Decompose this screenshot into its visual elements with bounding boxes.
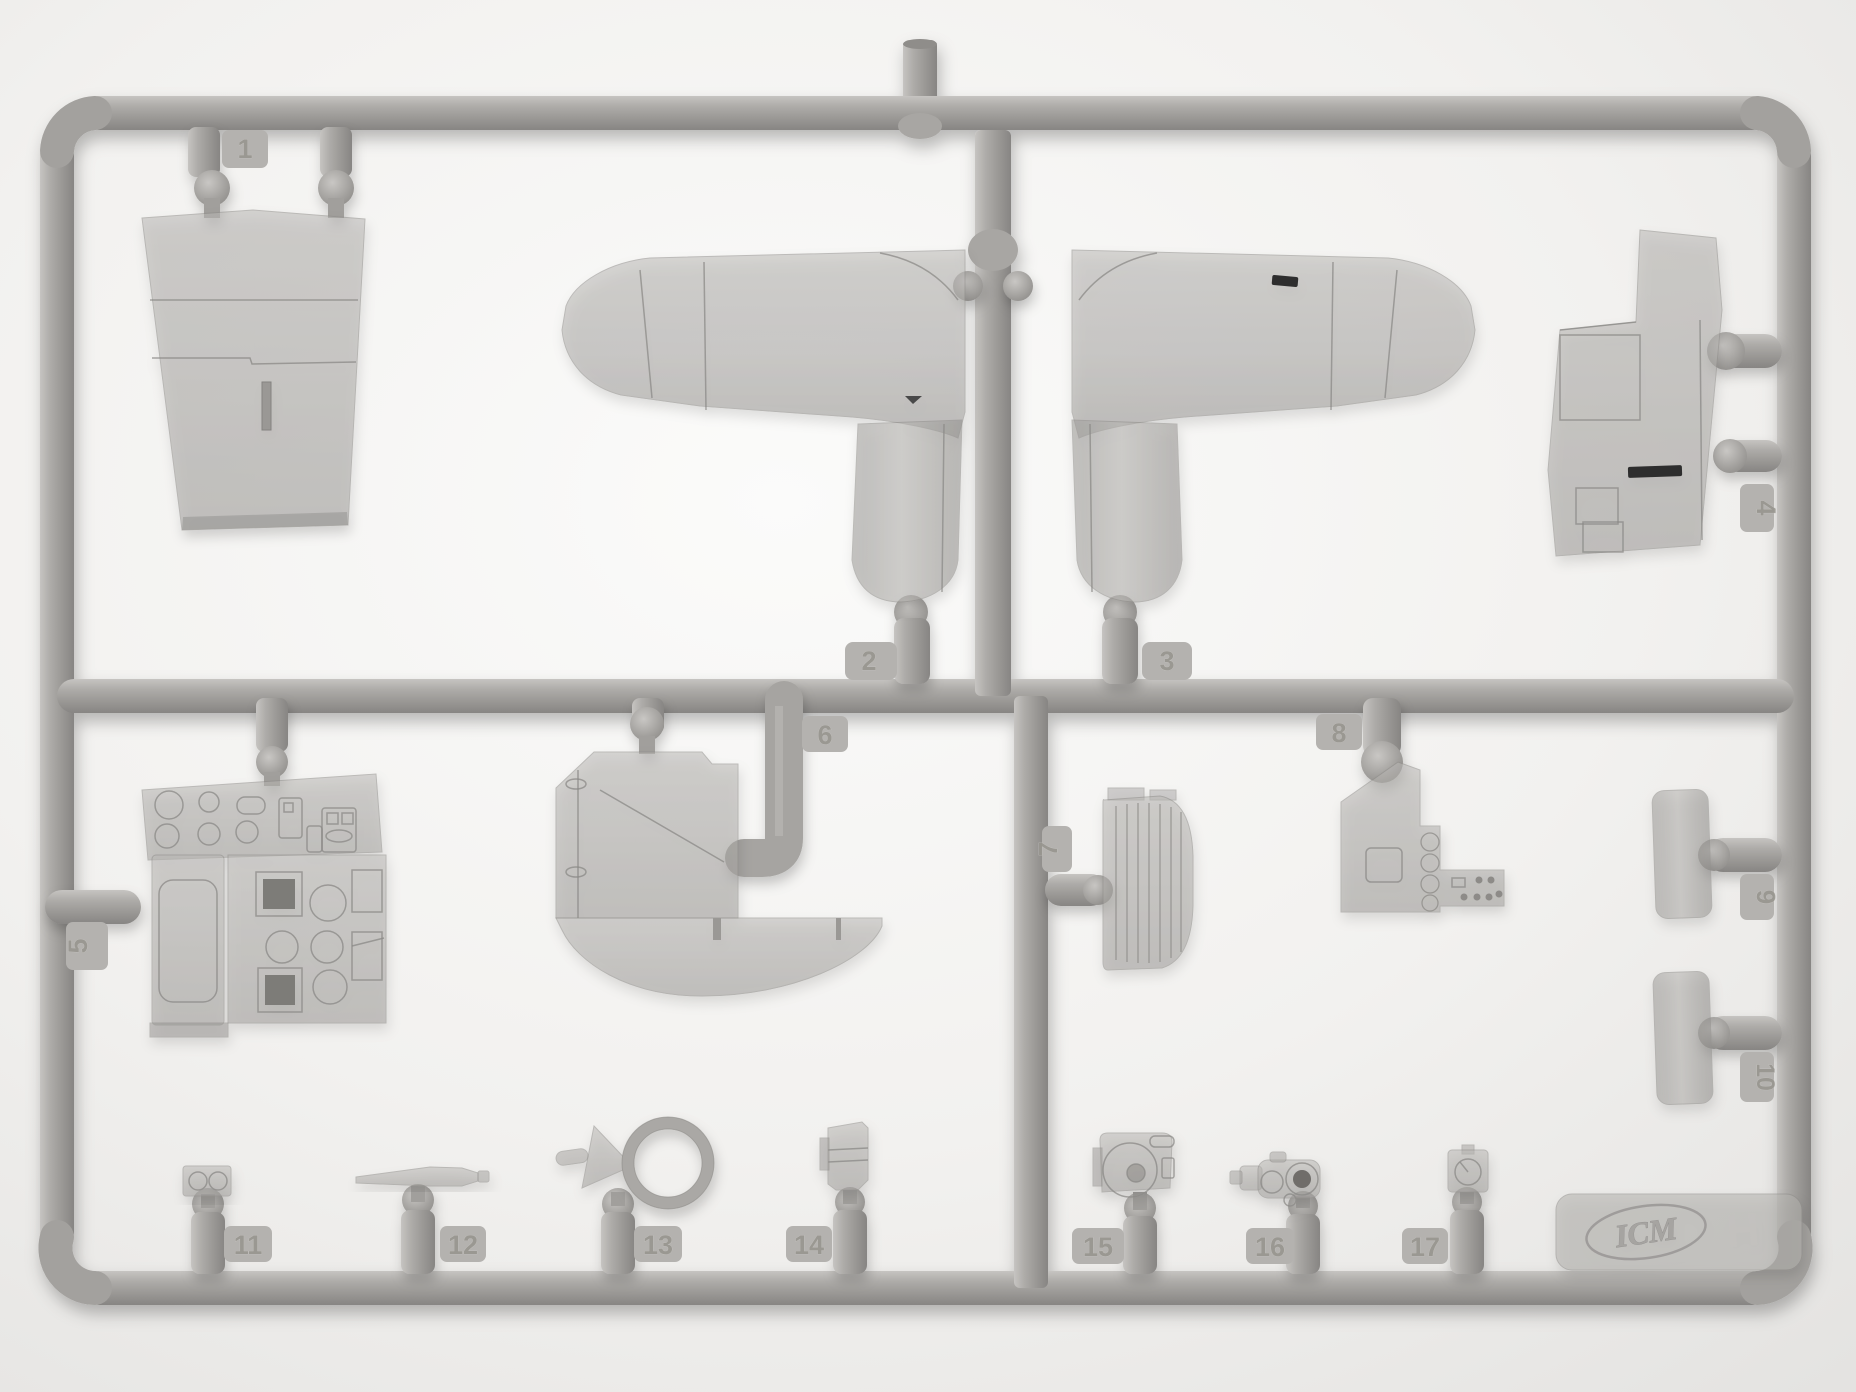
tag-15: 15: [1072, 1228, 1124, 1264]
tag-10: 10: [1740, 1052, 1779, 1102]
wheel-well-left: [852, 420, 962, 602]
tag-14: 14: [786, 1226, 832, 1262]
tag-7-number: 7: [1033, 842, 1063, 856]
tag-5-number: 5: [63, 938, 93, 953]
mold-cavity-letter: H: [1724, 1203, 1761, 1257]
part-10-curved-shroud: [1653, 971, 1714, 1105]
part-1-tapered-fuselage-panel: [142, 210, 365, 530]
tag-11-number: 11: [234, 1230, 263, 1260]
tag-6: 6: [802, 716, 848, 752]
tag-17-number: 17: [1410, 1232, 1440, 1262]
tag-1-number: 1: [237, 134, 252, 164]
frame-middle-bar: [57, 679, 1794, 713]
tag-6-number: 6: [817, 720, 832, 750]
tag-3: 3: [1142, 642, 1192, 680]
tag-8: 8: [1316, 714, 1362, 750]
tag-13-number: 13: [643, 1230, 673, 1260]
part-11-twin-hole-bracket: [183, 1166, 231, 1196]
frame-bottom-bar: [95, 1271, 1757, 1305]
tag-16-number: 16: [1255, 1232, 1285, 1262]
sprue-photo: 1 2 3 4 5 6 7 8 9 10 11 12 13 14 15 16 1…: [0, 0, 1856, 1392]
part-17-dial-box: [1448, 1145, 1488, 1192]
sprue-photo-canvas: 1 2 3 4 5 6 7 8 9 10 11 12 13 14 15 16 1…: [0, 0, 1856, 1392]
tag-1: 1: [222, 130, 268, 168]
part-15-camera-box: [1093, 1133, 1174, 1197]
tag-5: 5: [63, 922, 108, 970]
tag-2-number: 2: [861, 646, 876, 676]
tag-14-number: 14: [794, 1230, 824, 1260]
tag-9-number: 9: [1751, 890, 1781, 904]
tag-3-number: 3: [1159, 646, 1174, 676]
panel-dark-slot: [1628, 465, 1682, 478]
part-7-ribbed-panel: [1103, 788, 1193, 970]
center-lower-bar: [1014, 696, 1048, 1288]
wheel-well-right: [1072, 420, 1182, 602]
tag-11: 11: [224, 1226, 272, 1262]
logo-plate: ICM H: [1556, 1194, 1802, 1270]
tag-8-number: 8: [1331, 718, 1346, 748]
part-9-curved-shroud: [1652, 789, 1712, 919]
center-bar-knot: [968, 229, 1018, 271]
part-5-instrument-panel: [142, 774, 386, 1037]
tag-13: 13: [634, 1226, 682, 1262]
center-upper-bar: [975, 130, 1011, 696]
tag-12-number: 12: [448, 1230, 478, 1260]
tag-16: 16: [1246, 1228, 1294, 1264]
tag-12: 12: [440, 1226, 486, 1262]
tag-4-number: 4: [1751, 500, 1781, 515]
tag-10-number: 10: [1751, 1063, 1779, 1091]
tag-2: 2: [845, 642, 897, 680]
tag-17: 17: [1402, 1228, 1448, 1264]
tag-15-number: 15: [1083, 1232, 1113, 1262]
